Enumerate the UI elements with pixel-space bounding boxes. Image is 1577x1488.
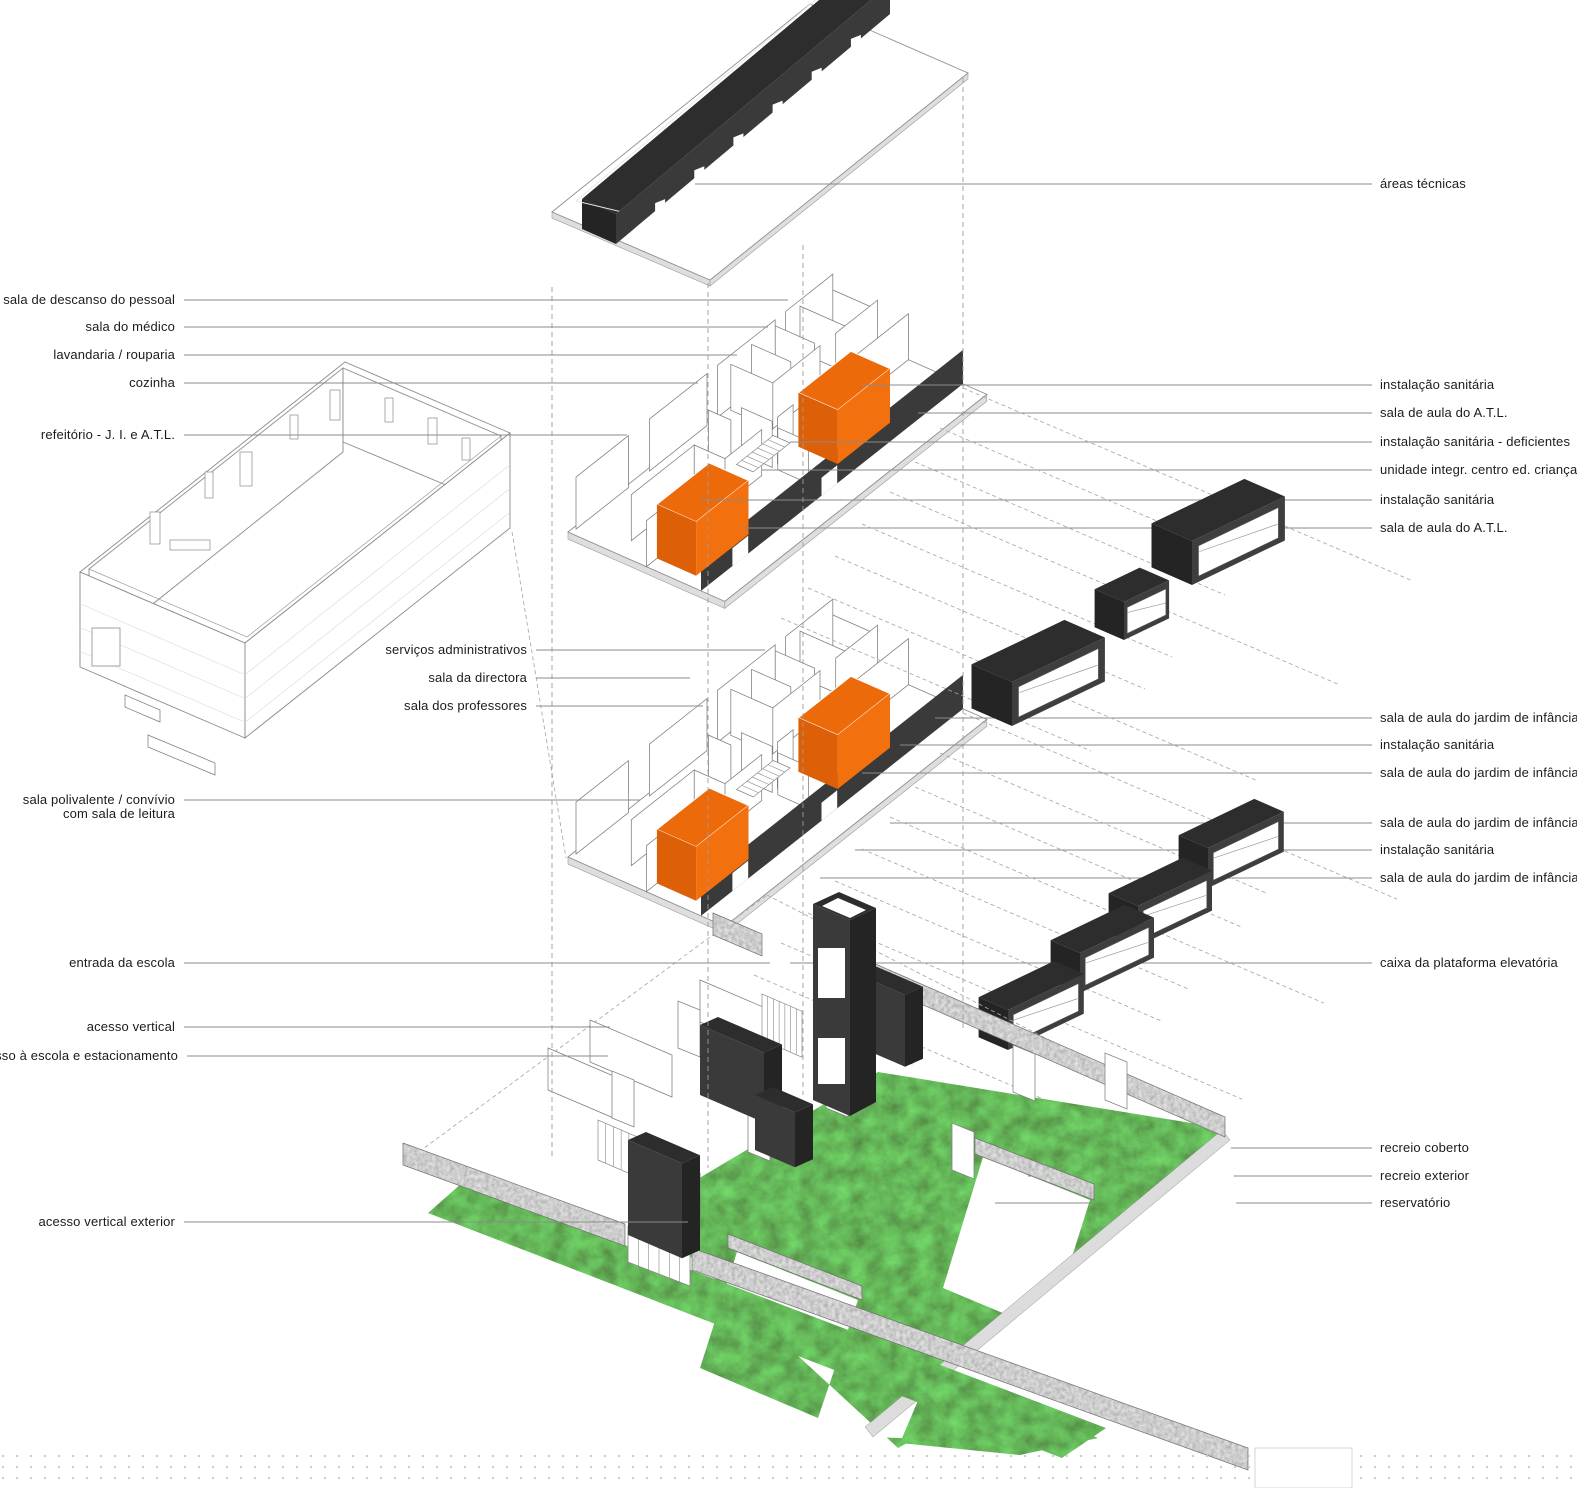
legend-label-text: entrada da escola [69, 955, 175, 970]
legend-label-right-6: sala de aula do A.T.L. [1380, 521, 1508, 535]
legend-label-text: caixa da plataforma elevatória [1380, 955, 1558, 970]
legend-label-text: instalação sanitária [1380, 737, 1494, 752]
legend-label-text: instalação sanitária [1380, 377, 1494, 392]
upper-floor-plan [568, 274, 987, 608]
dark-room-volume [628, 1132, 700, 1258]
sanitary-box [1095, 568, 1170, 640]
legend-label-text: sala de aula do jardim de infância [1380, 815, 1577, 830]
legend-label-right-4: unidade integr. centro ed. crianças defi… [1380, 463, 1577, 477]
legend-label-text: unidade integr. centro ed. crianças defi… [1380, 462, 1577, 477]
legend-label-text: sala polivalente / convívio [23, 792, 175, 807]
legend-label-left-12: acesso vertical exterior [38, 1215, 175, 1229]
legend-label-text: sala da directora [428, 670, 527, 685]
legend-label-text: áreas técnicas [1380, 176, 1466, 191]
legend-label-left-10: acesso vertical [87, 1020, 175, 1034]
legend-label-right-11: instalação sanitária [1380, 843, 1494, 857]
atl-classroom-box [1152, 479, 1285, 585]
legend-label-text: sala de aula do A.T.L. [1380, 520, 1508, 535]
legend-label-right-3: instalação sanitária - deficientes [1380, 435, 1570, 449]
legend-label-text: sala de aula do jardim de infância [1380, 870, 1577, 885]
legend-label-right-14: recreio coberto [1380, 1141, 1469, 1155]
legend-label-left-8: sala polivalente / convíviocom sala de l… [23, 793, 175, 821]
legend-label-text: sala de aula do jardim de infância [1380, 710, 1577, 725]
legend-label-left-11: de acesso à escola e estacionamento [0, 1049, 178, 1063]
legend-label-text: serviços administrativos [385, 642, 527, 657]
classroom-volumes [972, 479, 1285, 1050]
legend-label-text: sala do médico [85, 319, 175, 334]
dotted-ground-texture [0, 1448, 1577, 1488]
legend-label-text: recreio coberto [1380, 1140, 1469, 1155]
diagram-canvas [0, 0, 1577, 1488]
legend-label-left-0: sala de descanso do pessoal [3, 293, 175, 307]
legend-label-right-12: sala de aula do jardim de infância [1380, 871, 1577, 885]
legend-label-right-9: sala de aula do jardim de infância [1380, 766, 1577, 780]
legend-label-text: instalação sanitária [1380, 492, 1494, 507]
legend-label-text: reservatório [1380, 1195, 1450, 1210]
legend-label-right-5: instalação sanitária [1380, 493, 1494, 507]
legend-label-text: de acesso à escola e estacionamento [0, 1048, 178, 1063]
legend-label-text: sala dos professores [404, 698, 527, 713]
legend-label-left-6: sala da directora [428, 671, 527, 685]
legend-label-right-15: recreio exterior [1380, 1169, 1469, 1183]
legend-label-right-8: instalação sanitária [1380, 738, 1494, 752]
legend-label-right-0: áreas técnicas [1380, 177, 1466, 191]
legend-label-left-2: lavandaria / rouparia [53, 348, 175, 362]
exploded-axonometric-diagram: sala de descanso do pessoalsala do médic… [0, 0, 1577, 1488]
legend-label-left-5: serviços administrativos [385, 643, 527, 657]
site-level [403, 892, 1248, 1470]
elevator-tower [813, 892, 876, 1116]
legend-label-left-4: refeitório - J. I. e A.T.L. [41, 428, 175, 442]
legend-label-text: instalação sanitária [1380, 842, 1494, 857]
legend-label-text: sala de aula do A.T.L. [1380, 405, 1508, 420]
legend-label-left-3: cozinha [129, 376, 175, 390]
legend-label-right-2: sala de aula do A.T.L. [1380, 406, 1508, 420]
legend-label-right-16: reservatório [1380, 1196, 1450, 1210]
legend-label-text: refeitório - J. I. e A.T.L. [41, 427, 175, 442]
legend-label-left-7: sala dos professores [404, 699, 527, 713]
legend-label-left-1: sala do médico [85, 320, 175, 334]
legend-label-text: sala de aula do jardim de infância [1380, 765, 1577, 780]
legend-label-text: acesso vertical exterior [38, 1214, 175, 1229]
legend-label-text: sala de descanso do pessoal [3, 292, 175, 307]
legend-label-right-10: sala de aula do jardim de infância [1380, 816, 1577, 830]
legend-label-text: com sala de leitura [63, 806, 175, 821]
legend-label-text: lavandaria / rouparia [53, 347, 175, 362]
legend-label-text: acesso vertical [87, 1019, 175, 1034]
legend-label-text: instalação sanitária - deficientes [1380, 434, 1570, 449]
legend-label-text: cozinha [129, 375, 175, 390]
legend-label-left-9: entrada da escola [69, 956, 175, 970]
atl-classroom-box [972, 620, 1105, 726]
legend-label-right-1: instalação sanitária [1380, 378, 1494, 392]
legend-label-text: recreio exterior [1380, 1168, 1469, 1183]
legend-label-right-7: sala de aula do jardim de infância [1380, 711, 1577, 725]
ground-floor-plan [568, 599, 987, 933]
legend-label-right-13: caixa da plataforma elevatória [1380, 956, 1558, 970]
blank-marker-box [1255, 1448, 1352, 1488]
